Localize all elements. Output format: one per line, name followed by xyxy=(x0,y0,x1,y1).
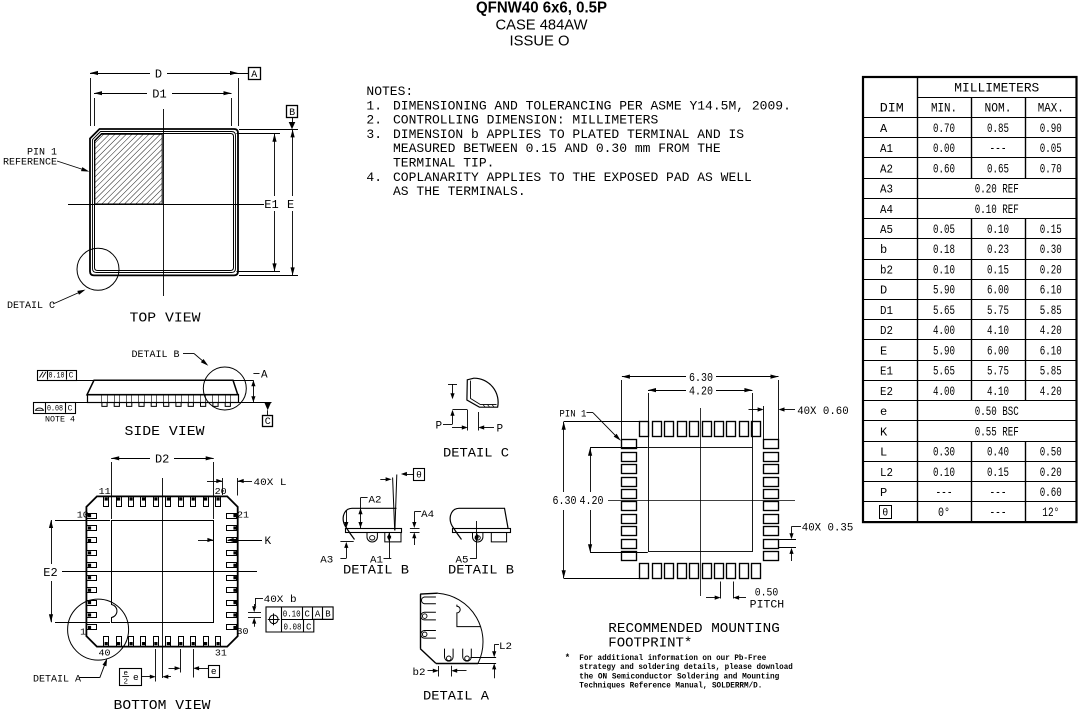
svg-text:b2: b2 xyxy=(880,264,893,278)
svg-text:D1: D1 xyxy=(880,304,893,318)
svg-text:DIMENSION b APPLIES TO PLATED: DIMENSION b APPLIES TO PLATED TERMINAL A… xyxy=(393,127,744,142)
svg-text:0.10: 0.10 xyxy=(933,263,955,278)
svg-text:40: 40 xyxy=(99,647,111,658)
svg-text:DIMENSIONING AND TOLERANCING P: DIMENSIONING AND TOLERANCING PER ASME Y1… xyxy=(393,98,791,113)
svg-text:e: e xyxy=(880,405,887,419)
svg-text:0.70: 0.70 xyxy=(1040,161,1062,176)
svg-text:SIDE VIEW: SIDE VIEW xyxy=(125,424,206,440)
svg-text:MEASURED BETWEEN 0.15 AND 0.30: MEASURED BETWEEN 0.15 AND 0.30 mm FROM T… xyxy=(393,141,721,156)
svg-text:DETAIL A: DETAIL A xyxy=(423,689,489,704)
svg-text:P: P xyxy=(436,421,443,433)
svg-text:40X L: 40X L xyxy=(254,477,287,489)
svg-text:PITCH: PITCH xyxy=(750,600,785,612)
svg-text:6.30: 6.30 xyxy=(553,495,577,508)
svg-text:30: 30 xyxy=(237,626,249,637)
svg-text:A1: A1 xyxy=(880,142,893,156)
svg-text:12°: 12° xyxy=(1042,505,1059,520)
svg-text:MILLIMETERS: MILLIMETERS xyxy=(954,81,1039,96)
svg-text:E2: E2 xyxy=(43,566,57,580)
svg-text:C: C xyxy=(68,404,73,413)
svg-text:A4: A4 xyxy=(421,509,434,521)
svg-text:θ: θ xyxy=(882,508,888,520)
svg-text:D: D xyxy=(880,284,887,298)
svg-text:0.10 REF: 0.10 REF xyxy=(975,202,1019,217)
svg-text:0.10: 0.10 xyxy=(933,465,955,480)
svg-text:5.65: 5.65 xyxy=(933,364,955,379)
svg-text:4.20: 4.20 xyxy=(1040,323,1062,338)
svg-text:strategy and soldering details: strategy and soldering details, please d… xyxy=(579,663,793,672)
svg-text:20: 20 xyxy=(215,486,227,497)
svg-text:P: P xyxy=(497,424,504,436)
svg-text:P: P xyxy=(880,486,887,500)
svg-text:θ: θ xyxy=(416,470,422,481)
svg-text:B: B xyxy=(325,610,331,620)
svg-text:e: e xyxy=(133,672,139,683)
svg-text:For additional information on: For additional information on our Pb-Fre… xyxy=(579,654,766,663)
svg-text:DIM: DIM xyxy=(880,102,904,116)
svg-text:DETAIL C: DETAIL C xyxy=(7,301,55,312)
svg-text:BOTTOM VIEW: BOTTOM VIEW xyxy=(114,698,212,711)
svg-text:Techniques Reference Manual, S: Techniques Reference Manual, SOLDERRM/D. xyxy=(579,682,762,691)
svg-text:0.05: 0.05 xyxy=(1040,141,1062,156)
svg-text:40X 0.60: 40X 0.60 xyxy=(797,406,849,418)
svg-text:0.08: 0.08 xyxy=(47,404,63,413)
svg-text:0.50 BSC: 0.50 BSC xyxy=(975,404,1019,419)
svg-text:0.08: 0.08 xyxy=(284,622,302,632)
svg-text:A: A xyxy=(880,122,888,136)
svg-text:b: b xyxy=(880,243,887,257)
svg-text:1.: 1. xyxy=(366,98,382,113)
svg-text:2: 2 xyxy=(123,679,128,687)
svg-text:5.75: 5.75 xyxy=(987,303,1009,318)
svg-text:---: --- xyxy=(990,485,1007,500)
svg-text:D: D xyxy=(155,68,162,82)
svg-text:D2: D2 xyxy=(880,324,893,338)
svg-text:DETAIL B: DETAIL B xyxy=(132,350,180,361)
svg-text:0.60: 0.60 xyxy=(933,161,955,176)
svg-text:0.65: 0.65 xyxy=(987,161,1009,176)
svg-text:FOOTPRINT*: FOOTPRINT* xyxy=(608,635,692,651)
svg-text:4.00: 4.00 xyxy=(933,384,955,399)
svg-text:11: 11 xyxy=(99,486,111,497)
svg-text:---: --- xyxy=(990,505,1007,520)
svg-text:4.00: 4.00 xyxy=(933,323,955,338)
svg-text:E2: E2 xyxy=(880,385,893,399)
svg-text:E1: E1 xyxy=(880,365,893,379)
svg-text:5.75: 5.75 xyxy=(987,364,1009,379)
svg-text:A2: A2 xyxy=(880,162,893,176)
svg-text:D2: D2 xyxy=(155,453,169,467)
svg-text:0.15: 0.15 xyxy=(987,263,1009,278)
svg-text:3.: 3. xyxy=(366,127,382,142)
svg-text:NOTES:: NOTES: xyxy=(366,84,413,99)
svg-text:DETAIL C: DETAIL C xyxy=(443,446,509,461)
svg-text:MAX.: MAX. xyxy=(1038,102,1064,116)
svg-text:A3: A3 xyxy=(320,555,333,567)
svg-text:5.90: 5.90 xyxy=(933,283,955,298)
svg-text:0.18: 0.18 xyxy=(933,242,955,257)
svg-text:0.70: 0.70 xyxy=(933,121,955,136)
svg-text:10: 10 xyxy=(77,509,89,520)
svg-text:6.00: 6.00 xyxy=(987,283,1009,298)
svg-text:0.20: 0.20 xyxy=(1040,263,1062,278)
svg-text:TERMINAL TIP.: TERMINAL TIP. xyxy=(393,156,494,171)
svg-text:21: 21 xyxy=(237,509,249,520)
svg-text:K: K xyxy=(880,425,888,439)
svg-text:6.30: 6.30 xyxy=(689,372,713,385)
svg-text:L2: L2 xyxy=(499,641,512,653)
svg-text:40X 0.35: 40X 0.35 xyxy=(802,523,854,535)
svg-text:0.23: 0.23 xyxy=(987,242,1009,257)
svg-text:DETAIL B: DETAIL B xyxy=(448,563,514,578)
svg-text:4.20: 4.20 xyxy=(580,495,604,508)
svg-text:A: A xyxy=(261,370,268,382)
svg-text:5.90: 5.90 xyxy=(933,343,955,358)
svg-text:4.: 4. xyxy=(366,170,382,185)
svg-text:A: A xyxy=(315,610,321,620)
svg-text:b2: b2 xyxy=(413,667,426,679)
svg-text:0.90: 0.90 xyxy=(1040,121,1062,136)
svg-text:A5: A5 xyxy=(880,223,893,237)
svg-text:0.50: 0.50 xyxy=(755,588,779,600)
svg-text:A4: A4 xyxy=(880,203,893,217)
svg-text:2.: 2. xyxy=(366,113,382,128)
svg-text:TOP VIEW: TOP VIEW xyxy=(130,311,202,327)
svg-text:5.65: 5.65 xyxy=(933,303,955,318)
svg-text:0.15: 0.15 xyxy=(1040,222,1062,237)
svg-text:*: * xyxy=(565,653,570,663)
svg-text:0.55 REF: 0.55 REF xyxy=(975,424,1019,439)
svg-text:C: C xyxy=(306,622,312,632)
svg-text:0.30: 0.30 xyxy=(933,445,955,460)
svg-text:A: A xyxy=(251,70,257,81)
svg-text:the ON Semiconductor Soldering: the ON Semiconductor Soldering and Mount… xyxy=(579,672,779,681)
svg-text:C: C xyxy=(69,371,74,380)
svg-text:C: C xyxy=(304,610,310,620)
svg-text:4.10: 4.10 xyxy=(987,384,1009,399)
svg-text:---: --- xyxy=(936,485,953,500)
svg-text:5.85: 5.85 xyxy=(1040,303,1062,318)
svg-text:6.00: 6.00 xyxy=(987,343,1009,358)
svg-text:0.60: 0.60 xyxy=(1040,485,1062,500)
svg-text:0.30: 0.30 xyxy=(1040,242,1062,257)
svg-text:QFNW40 6x6, 0.5P: QFNW40 6x6, 0.5P xyxy=(476,0,607,16)
svg-text:4.10: 4.10 xyxy=(987,323,1009,338)
svg-text:A2: A2 xyxy=(369,495,382,507)
svg-text:4.20: 4.20 xyxy=(1040,384,1062,399)
svg-text:COPLANARITY APPLIES TO THE EXP: COPLANARITY APPLIES TO THE EXPOSED PAD A… xyxy=(393,170,752,185)
svg-text:0.10: 0.10 xyxy=(49,371,65,380)
svg-text:PIN 1: PIN 1 xyxy=(559,409,586,421)
svg-text:5.85: 5.85 xyxy=(1040,364,1062,379)
svg-text:D1: D1 xyxy=(152,88,166,102)
svg-text:DETAIL A: DETAIL A xyxy=(33,675,81,686)
svg-text:ISSUE O: ISSUE O xyxy=(510,33,570,50)
svg-text:K: K xyxy=(265,536,272,548)
svg-text:0.10: 0.10 xyxy=(987,222,1009,237)
svg-text:6.10: 6.10 xyxy=(1040,283,1062,298)
svg-text:L: L xyxy=(880,446,887,460)
svg-text:40X b: 40X b xyxy=(264,594,297,606)
svg-text:0.10: 0.10 xyxy=(283,610,301,620)
svg-text:E: E xyxy=(880,344,887,358)
svg-text:MIN.: MIN. xyxy=(931,102,957,116)
svg-text:0.40: 0.40 xyxy=(987,445,1009,460)
svg-text:E1: E1 xyxy=(264,198,278,212)
svg-text:C: C xyxy=(265,417,271,428)
svg-text:6.10: 6.10 xyxy=(1040,343,1062,358)
svg-text:e: e xyxy=(211,666,217,677)
svg-text:e: e xyxy=(123,670,128,678)
svg-text:E: E xyxy=(287,198,294,212)
svg-text:A3: A3 xyxy=(880,183,893,197)
svg-text:31: 31 xyxy=(215,647,227,658)
svg-text:---: --- xyxy=(990,141,1007,156)
svg-text:0.00: 0.00 xyxy=(933,141,955,156)
svg-text:4.20: 4.20 xyxy=(689,386,713,399)
svg-text:0.20: 0.20 xyxy=(1040,465,1062,480)
svg-text:AS THE TERMINALS.: AS THE TERMINALS. xyxy=(393,184,526,199)
svg-text:NOTE 4: NOTE 4 xyxy=(45,416,75,425)
svg-text:0.20 REF: 0.20 REF xyxy=(975,182,1019,197)
svg-text:NOM.: NOM. xyxy=(985,102,1012,116)
svg-text:0.50: 0.50 xyxy=(1040,445,1062,460)
svg-text:1: 1 xyxy=(80,626,86,637)
svg-text:REFERENCE: REFERENCE xyxy=(3,158,57,169)
svg-text:L2: L2 xyxy=(880,466,893,480)
svg-text:0.85: 0.85 xyxy=(987,121,1009,136)
svg-text:0.05: 0.05 xyxy=(933,222,955,237)
svg-text:CASE 484AW: CASE 484AW xyxy=(496,16,589,33)
svg-text:0°: 0° xyxy=(938,505,950,520)
svg-text:0.15: 0.15 xyxy=(987,465,1009,480)
svg-text:DETAIL B: DETAIL B xyxy=(343,563,409,578)
svg-text:CONTROLLING DIMENSION: MILLIME: CONTROLLING DIMENSION: MILLIMETERS xyxy=(393,113,658,128)
